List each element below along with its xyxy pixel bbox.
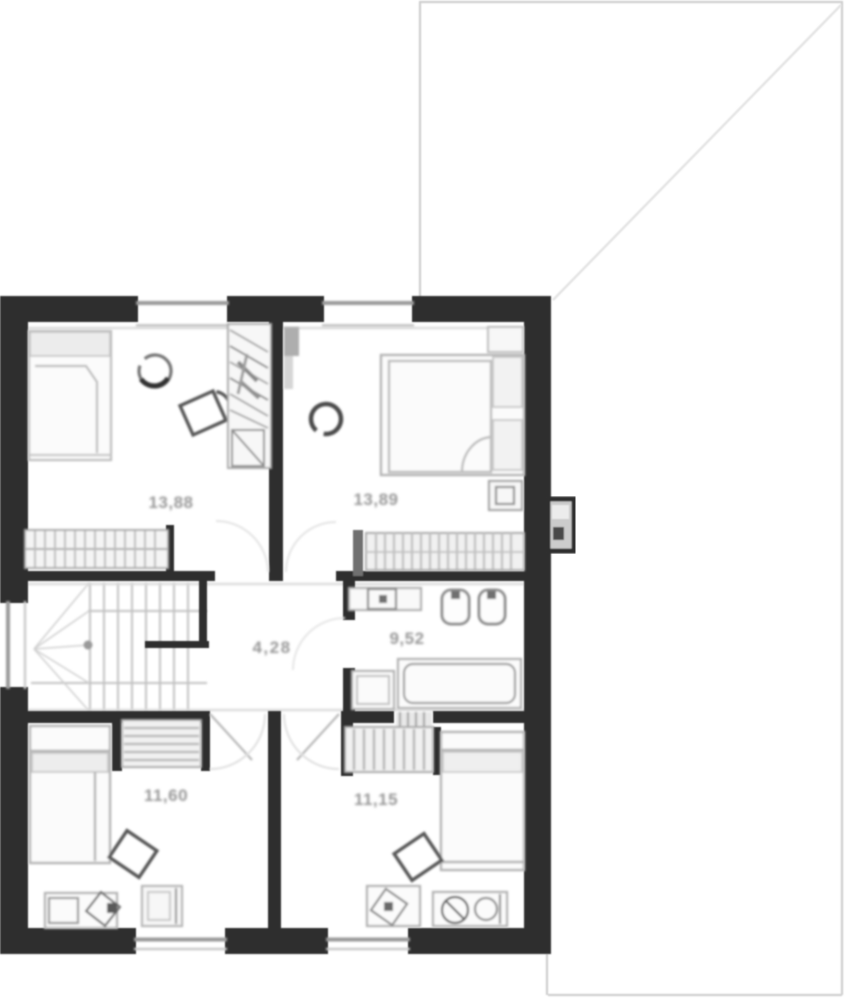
svg-text:9,52: 9,52	[389, 629, 424, 648]
svg-text:11,15: 11,15	[354, 790, 398, 809]
svg-text:11,60: 11,60	[144, 786, 188, 805]
svg-text:13,88: 13,88	[148, 493, 193, 512]
svg-text:13,89: 13,89	[353, 490, 398, 509]
svg-text:4,28: 4,28	[252, 638, 291, 657]
